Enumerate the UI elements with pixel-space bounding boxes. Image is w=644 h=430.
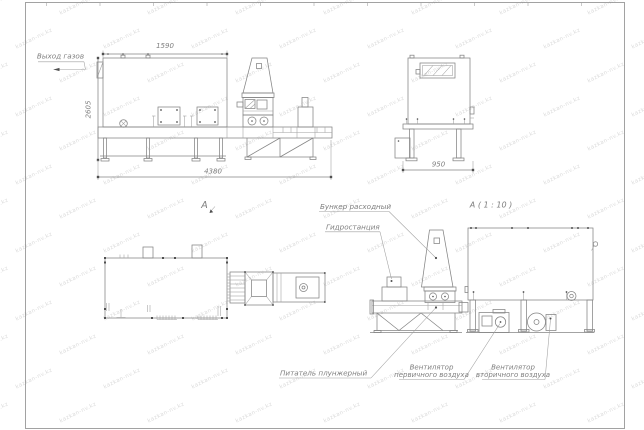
dim-text-1590: 1590 xyxy=(156,42,174,50)
side-legs xyxy=(406,129,464,161)
hopper-label: Бункер расходный xyxy=(320,202,391,211)
top-hatch xyxy=(416,63,455,78)
boiler-plan xyxy=(105,258,227,318)
flange-port xyxy=(567,292,576,301)
secondary-fan-callout: Вентилятор вторичного воздуха xyxy=(476,320,551,380)
flow-arrow xyxy=(54,68,60,71)
boiler-body xyxy=(103,58,227,127)
top-fitting xyxy=(143,247,153,258)
furnace-body xyxy=(468,228,593,300)
hydrostation xyxy=(382,277,407,301)
front-view: 1590 2605 4380 Выход газов xyxy=(37,42,332,180)
top-fitting xyxy=(192,245,202,258)
drive-box xyxy=(298,98,313,128)
base-band xyxy=(403,124,473,129)
fan-unit-plan xyxy=(273,272,326,303)
primary-air-fan xyxy=(479,310,509,333)
drawing-sheet: { "watermark": { "text": "kazkan-nv.kz" … xyxy=(0,0,644,430)
detail-view: А ( 1 : 10 ) xyxy=(279,201,598,380)
side-small-box xyxy=(395,138,410,158)
lifting-lug xyxy=(121,55,125,58)
gas-outlet-label: Выход газов xyxy=(37,52,84,61)
feed-hopper xyxy=(422,230,457,303)
dim-text-4380: 4380 xyxy=(204,168,222,176)
side-fitting xyxy=(470,107,474,114)
boiler-side xyxy=(408,58,470,124)
dim-text-2605: 2605 xyxy=(85,100,93,118)
conveyor-plan xyxy=(228,272,246,303)
lifting-lug xyxy=(146,55,150,58)
secondary-fan-label-line2: вторичного воздуха xyxy=(476,371,550,379)
dim-text-950: 950 xyxy=(432,161,446,169)
hydrostation-callout: Гидростанция xyxy=(325,223,392,280)
hook-lug xyxy=(592,242,598,251)
plan-anchor-marks xyxy=(107,303,221,318)
valve xyxy=(120,120,128,128)
support-legs xyxy=(100,138,226,161)
view-arrow xyxy=(210,209,214,213)
fan-housing xyxy=(243,115,273,127)
gas-outlet-callout: Выход газов xyxy=(37,52,86,72)
hopper-plan xyxy=(244,271,274,306)
detail-a-label: А ( 1 : 10 ) xyxy=(469,201,512,210)
chimney-hopper xyxy=(237,58,274,127)
hatch-box xyxy=(197,107,218,125)
view-a-label: А xyxy=(200,200,215,213)
plan-view xyxy=(104,245,326,320)
furnace-anchor-bolts xyxy=(473,291,568,300)
hatch-box xyxy=(158,107,180,125)
technical-drawing: 1590 2605 4380 Выход газов xyxy=(0,0,644,430)
primary-fan-label-line2: первичного воздуха xyxy=(394,371,469,379)
base-frame xyxy=(98,127,332,138)
view-a-text: А xyxy=(200,200,208,211)
lifting-lug xyxy=(410,55,414,58)
hydrostation-label: Гидростанция xyxy=(326,223,380,232)
dim-overall-length: 4380 xyxy=(97,140,332,180)
anchor-bolts xyxy=(406,118,466,124)
lifting-lug xyxy=(460,55,464,58)
secondary-air-fan xyxy=(528,313,557,331)
conveyor-truss xyxy=(245,138,316,160)
plunger-feeder xyxy=(370,300,468,314)
bottom-comb-strips xyxy=(157,316,218,320)
dim-side-width: 950 xyxy=(402,161,474,174)
side-view: 950 xyxy=(395,55,474,173)
top-ticks xyxy=(120,255,128,259)
feeder-label: Питатель плунжерный xyxy=(280,369,367,378)
plan-corner-dots xyxy=(104,257,228,319)
border-ruler-ticks xyxy=(47,3,582,7)
